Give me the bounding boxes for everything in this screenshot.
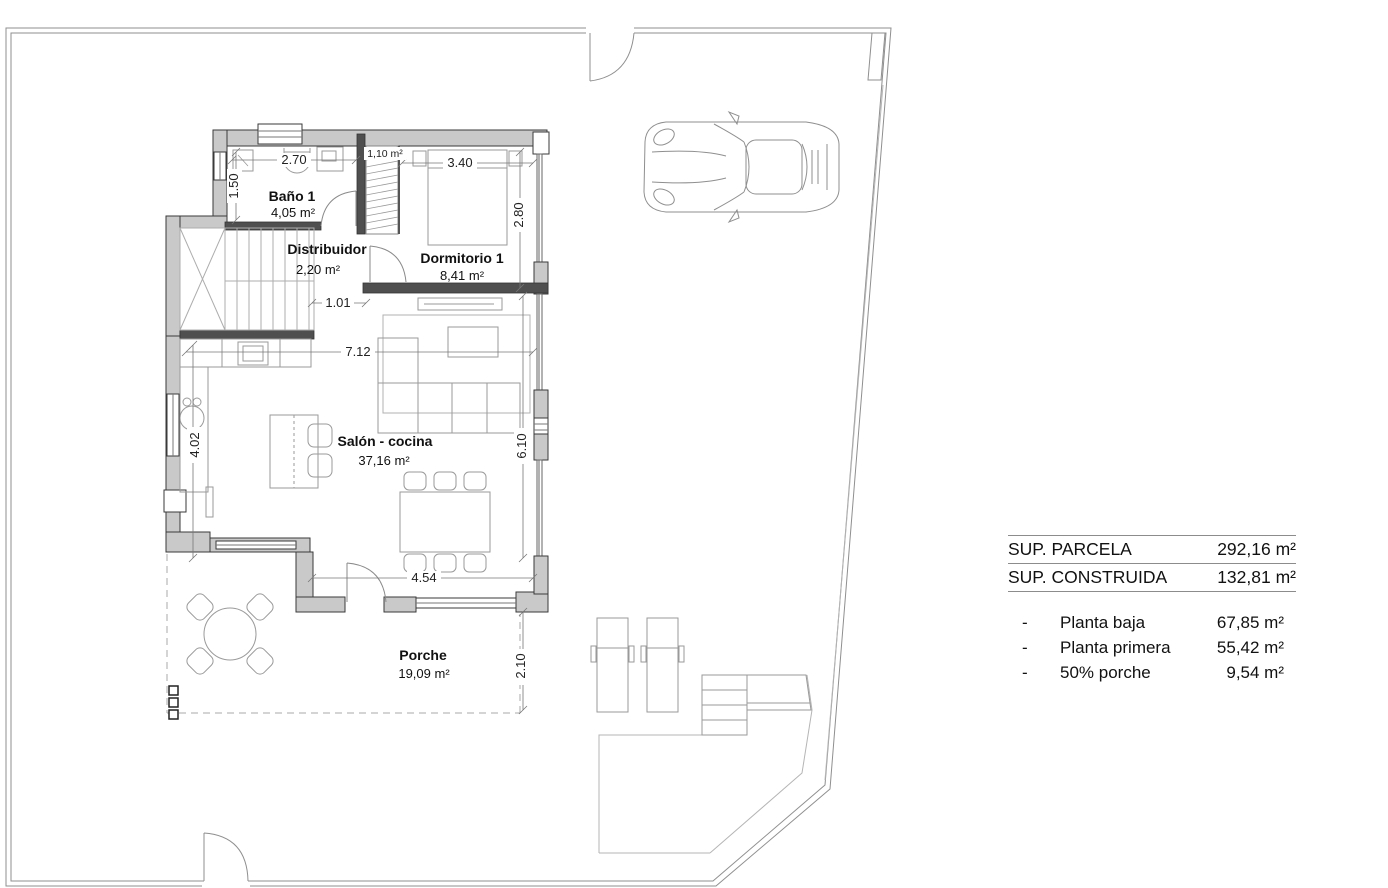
breakdown-value: 67,85 m² [1192, 613, 1284, 633]
car-icon [644, 112, 839, 222]
summary-spacer [1008, 592, 1296, 610]
dim-kitchen-height: 4.02 [187, 432, 202, 457]
window-bath-north [258, 124, 302, 144]
window-kitchen-west [164, 394, 186, 512]
gate-top [590, 33, 634, 81]
dim-porch-width: 4.54 [411, 570, 436, 585]
site-plan-drawing: 2.70 1.50 3.40 2.80 1.01 7.12 4.02 6.10 … [0, 0, 1388, 888]
room-area-porche: 19,09 m² [398, 666, 450, 681]
breakdown-row: - 50% porche 9,54 m² [1008, 660, 1296, 685]
room-area-dormitorio: 8,41 m² [440, 268, 485, 283]
door-porch [347, 563, 386, 602]
stool-icon [308, 424, 332, 447]
sun-loungers [591, 618, 684, 712]
bullet-dash: - [1022, 613, 1036, 633]
gate-bottom [204, 833, 248, 881]
floor-plan-page: 2.70 1.50 3.40 2.80 1.01 7.12 4.02 6.10 … [0, 0, 1388, 888]
room-label-bano: Baño 1 [269, 188, 316, 204]
interior-walls [180, 134, 548, 339]
summary-value: 132,81 m² [1196, 567, 1296, 588]
breakdown-label: Planta baja [1060, 613, 1192, 633]
dim-bedroom-width: 3.40 [447, 155, 472, 170]
bullet-dash: - [1022, 638, 1036, 658]
door-bedroom [370, 246, 406, 282]
rug-outline [383, 315, 530, 413]
window-east-1 [537, 154, 542, 262]
window-east-3 [534, 418, 548, 434]
kitchen-island [270, 415, 332, 488]
door-bath [321, 191, 356, 226]
pool-steps [702, 675, 811, 735]
window-east-2 [537, 294, 542, 390]
dim-salon-height: 6.10 [514, 433, 529, 458]
summary-label: SUP. CONSTRUIDA [1008, 567, 1196, 588]
terrace-path-outline [599, 675, 812, 853]
dim-salon-width: 7.12 [345, 344, 370, 359]
sun-lounger-icon [641, 618, 684, 712]
dim-bath-height: 1.50 [226, 173, 241, 198]
bullet-dash: - [1022, 663, 1036, 683]
dim-bath-width: 2.70 [281, 152, 306, 167]
dim-porch-height: 2.10 [513, 653, 528, 678]
summary-value: 292,16 m² [1196, 539, 1296, 560]
breakdown-row: - Planta primera 55,42 m² [1008, 635, 1296, 660]
room-area-bano: 4,05 m² [271, 205, 316, 220]
stool-icon [308, 454, 332, 477]
breakdown-row: - Planta baja 67,85 m² [1008, 610, 1296, 635]
dim-hall-opening: 1.01 [325, 295, 350, 310]
room-label-porche: Porche [399, 647, 447, 663]
room-area-salon: 37,16 m² [358, 453, 410, 468]
window-porch-front [416, 598, 516, 608]
sun-lounger-icon [591, 618, 634, 712]
room-label-dormitorio: Dormitorio 1 [420, 250, 503, 266]
room-label-distribuidor: Distribuidor [287, 241, 367, 257]
summary-row: SUP. CONSTRUIDA 132,81 m² [1008, 564, 1296, 592]
breakdown-value: 9,54 m² [1192, 663, 1284, 683]
planter-squares [169, 686, 178, 719]
breakdown-label: Planta primera [1060, 638, 1192, 658]
summary-label: SUP. PARCELA [1008, 539, 1196, 560]
dim-bedroom-height: 2.80 [511, 202, 526, 227]
closet-area-label: 1,10 m² [367, 148, 403, 160]
dining-table-icon [400, 472, 490, 572]
sideboard-icon [418, 298, 502, 310]
room-area-distribuidor: 2,20 m² [296, 262, 341, 277]
area-summary-table: SUP. PARCELA 292,16 m² SUP. CONSTRUIDA 1… [1008, 535, 1296, 685]
summary-row: SUP. PARCELA 292,16 m² [1008, 535, 1296, 564]
breakdown-value: 55,42 m² [1192, 638, 1284, 658]
window-bath-west [214, 152, 226, 180]
window-east-4 [537, 460, 542, 556]
breakdown-label: 50% porche [1060, 663, 1192, 683]
coffee-table-icon [448, 327, 498, 357]
window-salon-south [216, 541, 296, 549]
room-label-salon: Salón - cocina [338, 433, 433, 449]
patio-table-icon [184, 591, 275, 676]
sink-icon [180, 406, 204, 430]
